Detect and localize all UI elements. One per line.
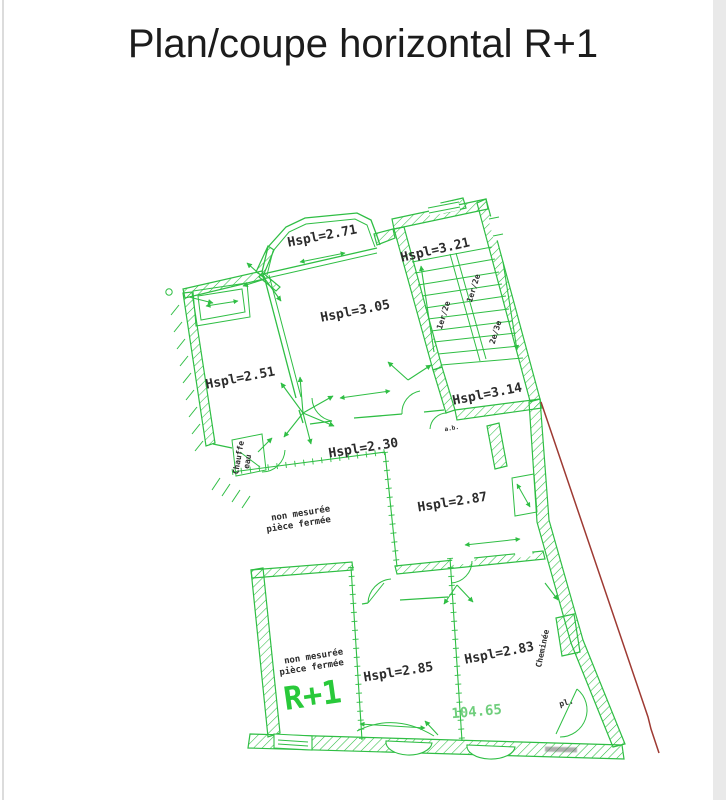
floor-marker: R+1 bbox=[281, 672, 344, 718]
wall-niche-arc bbox=[467, 745, 515, 759]
stair-flight-label: 1er/2e bbox=[435, 300, 452, 330]
tiny-note: a.b. bbox=[444, 424, 459, 433]
floor-plan-drawing: Hspl=2.71 Hspl=3.21 Hspl=3.05 Hspl=2.51 … bbox=[0, 0, 726, 800]
room-label-hspl-230: Hspl=2.30 bbox=[327, 436, 399, 462]
chimney-label: Cheminée bbox=[533, 628, 551, 668]
plan-sheet: Plan/coupe horizontal R+1 bbox=[0, 0, 726, 800]
stair-flight-label: 2e/3e bbox=[488, 319, 504, 345]
bay-window bbox=[262, 213, 380, 279]
survey-arrows bbox=[189, 263, 558, 735]
room-label-hspl-271: Hspl=2.71 bbox=[286, 222, 358, 250]
exterior-hatch-ticks bbox=[171, 305, 250, 508]
room-label-hspl-321: Hspl=3.21 bbox=[399, 235, 471, 266]
closet-label: pl. bbox=[558, 696, 574, 708]
room-label-hspl-285: Hspl=2.85 bbox=[362, 660, 434, 686]
room-label-hspl-305: Hspl=3.05 bbox=[319, 297, 391, 325]
area-value: 104.65 bbox=[451, 702, 503, 722]
window-box bbox=[512, 474, 537, 516]
water-heater-label: eau bbox=[242, 453, 253, 469]
room-label-hspl-283: Hspl=2.83 bbox=[463, 639, 535, 667]
corner-point-marker bbox=[166, 289, 172, 295]
illegible-stamp bbox=[545, 747, 577, 753]
room-label-hspl-287: Hspl=2.87 bbox=[416, 490, 488, 516]
room-label-hspl-251: Hspl=2.51 bbox=[204, 364, 276, 392]
